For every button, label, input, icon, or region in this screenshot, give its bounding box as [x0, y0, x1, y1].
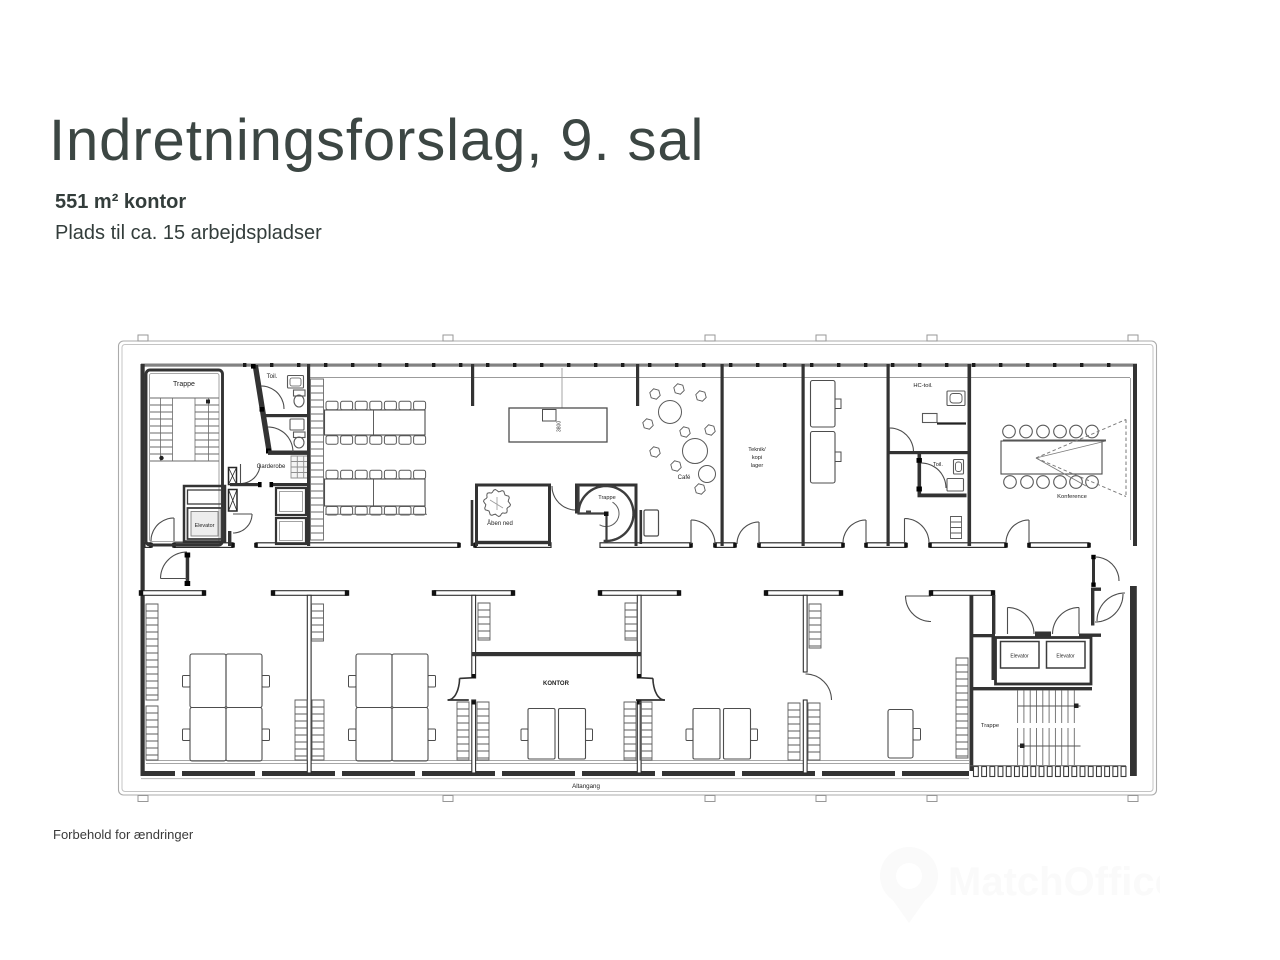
svg-text:Café: Café	[678, 475, 691, 481]
svg-text:Altangang: Altangang	[572, 783, 600, 790]
svg-text:Trappe: Trappe	[173, 381, 195, 388]
svg-text:Garderobe: Garderobe	[257, 464, 286, 470]
svg-text:MatchOffice: MatchOffice	[948, 860, 1160, 904]
svg-text:Elevator: Elevator	[195, 523, 215, 529]
svg-text:Elevator: Elevator	[1056, 654, 1075, 660]
svg-text:KONTOR: KONTOR	[543, 681, 570, 687]
svg-text:kopi: kopi	[752, 455, 762, 461]
svg-text:Trappe: Trappe	[981, 723, 999, 729]
svg-text:HC-toil.: HC-toil.	[913, 383, 933, 389]
svg-text:Konference: Konference	[1057, 494, 1087, 500]
svg-text:Teknik/: Teknik/	[748, 447, 766, 453]
svg-text:Toil.: Toil.	[267, 374, 278, 380]
svg-text:lager: lager	[751, 463, 764, 469]
svg-text:Elevator: Elevator	[1010, 654, 1029, 660]
svg-text:Åben ned: Åben ned	[487, 520, 513, 527]
svg-text:3800: 3800	[557, 421, 563, 432]
svg-text:Trappe: Trappe	[598, 495, 616, 501]
